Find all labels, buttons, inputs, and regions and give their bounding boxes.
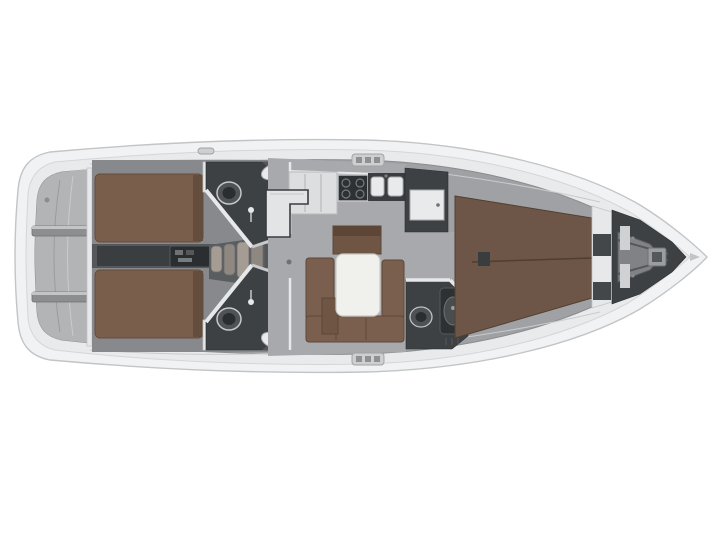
transom-area xyxy=(35,169,90,343)
bulkhead-slot-1 xyxy=(593,234,611,256)
deck-cleat xyxy=(198,148,214,154)
clutch-5 xyxy=(365,356,371,362)
windlass-gypsy xyxy=(652,252,662,262)
companionway-tread-1 xyxy=(211,246,222,272)
clutch-4 xyxy=(356,356,362,362)
galley-sink-basin-2 xyxy=(388,177,403,196)
settee-right xyxy=(382,260,404,320)
aft-cabin-port-berth-foot xyxy=(193,175,203,241)
aft-cabin-port-wall xyxy=(203,162,206,192)
locker-handle xyxy=(436,203,440,207)
aft-cabin-starboard-berth-foot xyxy=(193,271,203,337)
toilet-bowl xyxy=(416,312,427,322)
aft-cabin-port-berth xyxy=(95,174,203,242)
mast-post xyxy=(287,260,292,265)
toilet-bowl xyxy=(223,313,236,325)
bow-support-lower xyxy=(620,264,630,288)
galley-stove xyxy=(338,175,368,201)
salon-chest-lid xyxy=(333,226,381,236)
engine-detail-1 xyxy=(175,250,183,255)
floorplan-svg xyxy=(0,0,720,540)
transom-step-upper-highlight xyxy=(32,226,92,229)
companionway-tread-2 xyxy=(224,244,235,275)
deck-clutch-bank-bottom xyxy=(352,353,384,365)
galley-sink-basin-1 xyxy=(371,177,384,196)
clutch-1 xyxy=(356,157,362,163)
wardrobe xyxy=(405,168,448,232)
toilet-bowl xyxy=(223,187,236,199)
stern-swim-platform xyxy=(32,168,92,346)
transom-step-lower-highlight xyxy=(32,292,92,295)
engine-block xyxy=(170,246,210,267)
aft-cabin-starboard-berth xyxy=(95,270,203,338)
clutch-3 xyxy=(374,157,380,163)
engine-detail-2 xyxy=(186,250,194,255)
yacht-floorplan-image xyxy=(0,0,720,540)
galley-faucet xyxy=(384,174,387,177)
bow-support-upper xyxy=(620,226,630,250)
collision-bulkhead xyxy=(592,206,612,308)
shower-icon xyxy=(248,299,254,305)
deck-clutch-bank-top xyxy=(352,154,384,166)
forward-passage-floor xyxy=(400,232,455,282)
transom-latch xyxy=(45,198,50,203)
engine-detail-3 xyxy=(178,258,192,262)
clutch-2 xyxy=(365,157,371,163)
shower-drain xyxy=(451,306,455,310)
bulkhead-slot-2 xyxy=(593,282,611,300)
stringer-bolt-1 xyxy=(632,237,635,240)
aft-cabin-starboard-wall xyxy=(203,320,206,350)
salon-table xyxy=(336,254,380,316)
stern-bulkhead xyxy=(87,168,92,346)
clutch-6 xyxy=(374,356,380,362)
stringer-bolt-2 xyxy=(632,275,635,278)
settee-bottom xyxy=(306,316,404,342)
vberth-step xyxy=(478,252,490,266)
shower-icon xyxy=(248,207,254,213)
